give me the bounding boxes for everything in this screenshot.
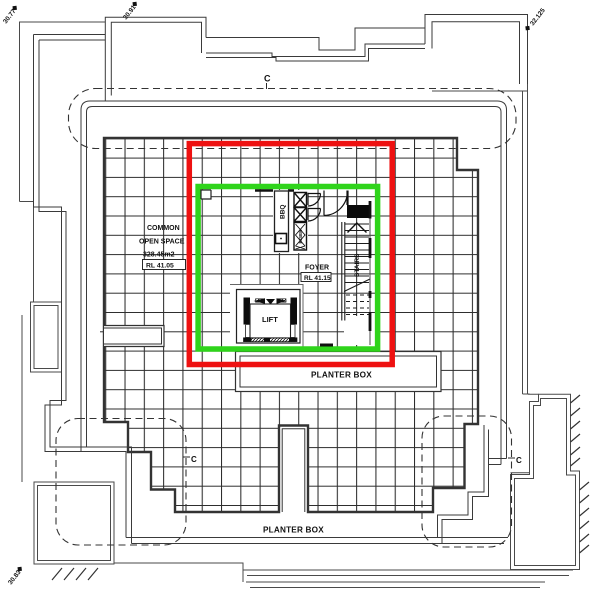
svg-text:PLANTER BOX: PLANTER BOX [311, 371, 372, 380]
svg-text:328.45m2: 328.45m2 [143, 252, 175, 259]
svg-text:RL 41.15: RL 41.15 [304, 275, 331, 282]
svg-text:PLANTER BOX: PLANTER BOX [263, 526, 324, 535]
svg-text:BBQ: BBQ [280, 205, 287, 219]
svg-text:COMMON: COMMON [147, 225, 180, 232]
svg-text:OPEN SPACE: OPEN SPACE [139, 239, 185, 246]
svg-text:LIFT: LIFT [262, 315, 278, 324]
svg-text:STAIRS: STAIRS [354, 253, 361, 277]
svg-text:FOYER: FOYER [305, 265, 329, 272]
svg-text:RISER: RISER [298, 229, 303, 244]
svg-text:RL 41.05: RL 41.05 [146, 263, 174, 270]
svg-text:C: C [516, 456, 522, 465]
svg-text:C: C [264, 74, 271, 84]
svg-text:C: C [191, 455, 197, 464]
